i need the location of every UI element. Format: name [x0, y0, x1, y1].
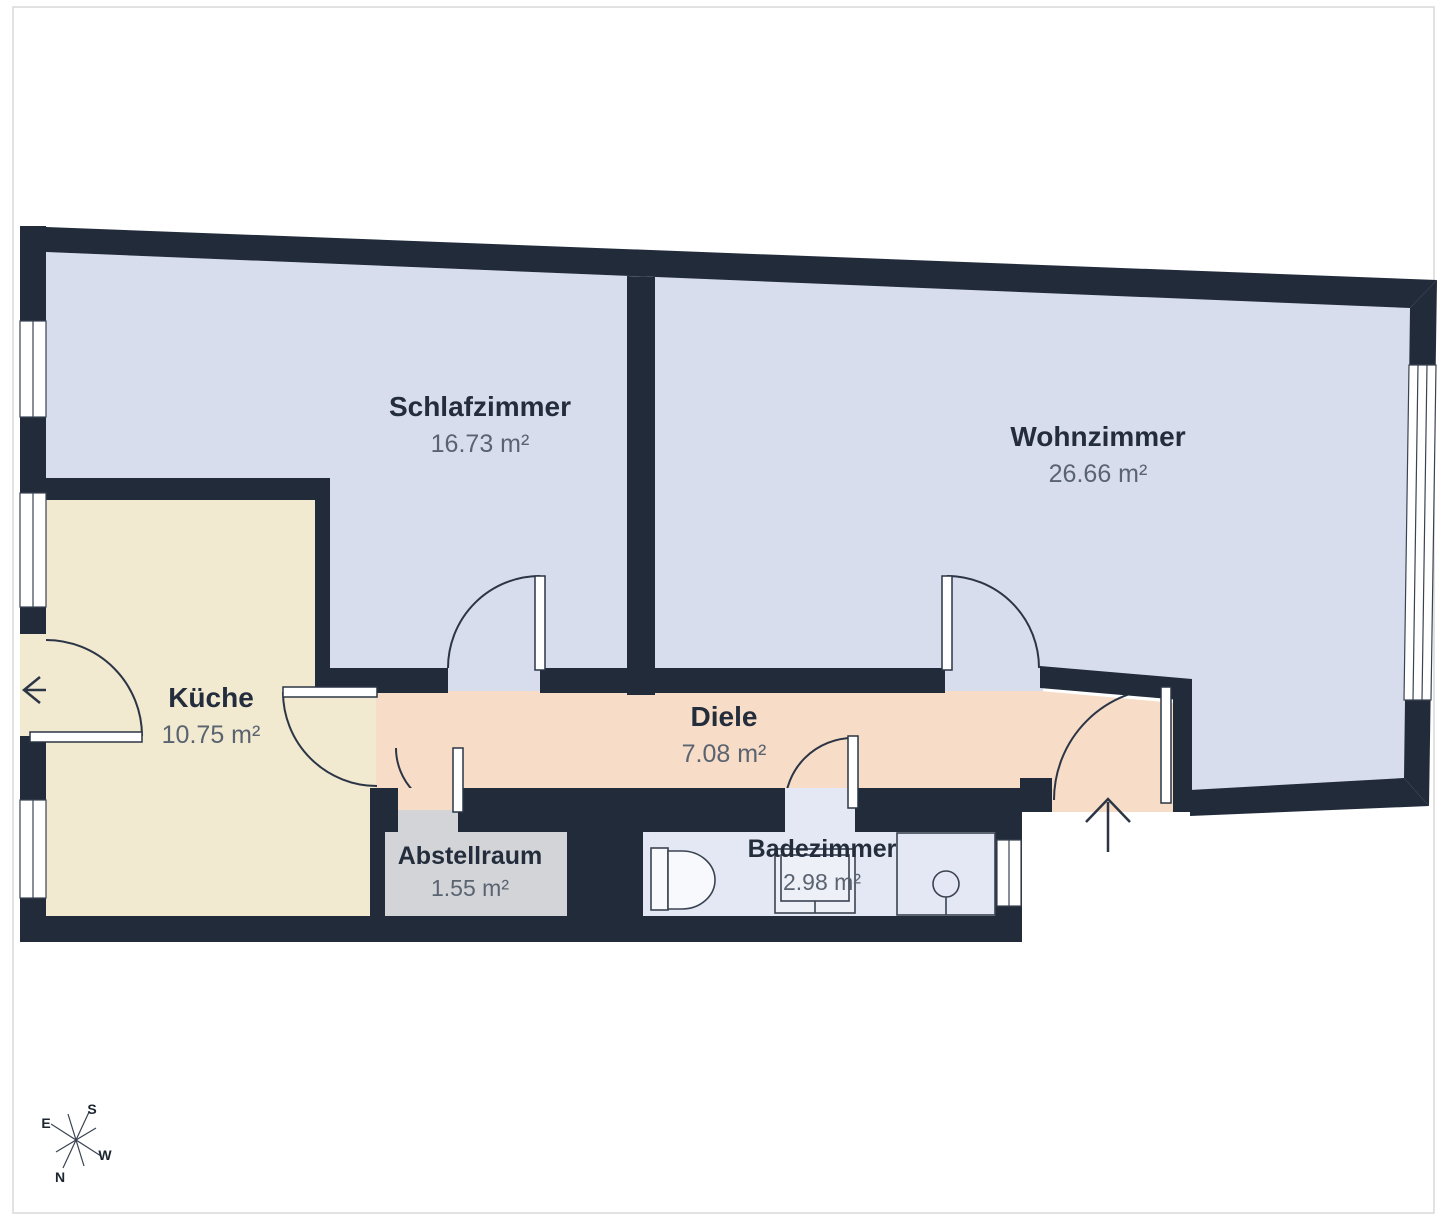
kitchen-exterior-door-opening [20, 634, 46, 736]
window-left-2 [20, 493, 46, 607]
kueche-area: 10.75 m² [162, 721, 261, 749]
wall-hall-bottom [370, 788, 1022, 832]
window-left-1 [20, 321, 46, 417]
wall-bedroom-living [627, 276, 655, 695]
window-right [1404, 365, 1436, 700]
kitchen-hall-door-leaf [283, 687, 377, 697]
wall-entry-nook-corner [1020, 778, 1052, 812]
schlafzimmer-area: 16.73 m² [431, 430, 530, 458]
abstellraum-door-opening-storage [398, 810, 458, 832]
kueche-label: Küche [168, 682, 254, 713]
badezimmer-area: 2.98 m² [783, 869, 861, 895]
window-left-3 [20, 800, 46, 898]
abstellraum-area: 1.55 m² [431, 875, 509, 901]
compass-north-label: N [55, 1169, 65, 1185]
badezimmer-label: Badezimmer [748, 835, 897, 863]
schlafzimmer-door-leaf [535, 576, 545, 670]
wohnzimmer-area: 26.66 m² [1049, 460, 1148, 488]
wohnzimmer-door-floor [943, 658, 1043, 692]
floorplan-page: Schlafzimmer 16.73 m² Wohnzimmer 26.66 m… [0, 0, 1440, 1218]
compass-east-label: E [41, 1115, 50, 1131]
wall-bottom [20, 916, 1022, 942]
compass-south-label: S [87, 1101, 96, 1117]
compass-rose-icon: S E W N [41, 1101, 112, 1185]
badezimmer-door-opening [785, 788, 855, 832]
diele-area: 7.08 m² [682, 740, 767, 768]
wall-entry-nook-right [1173, 679, 1192, 812]
wall-hall-top-b [540, 668, 945, 693]
abstellraum-label: Abstellraum [398, 842, 542, 870]
wall-storage-bath [567, 832, 643, 916]
wall-kitchen-storage [370, 832, 385, 916]
floorplan-drawing: Schlafzimmer 16.73 m² Wohnzimmer 26.66 m… [0, 0, 1440, 1218]
entrance-door-leaf [1161, 687, 1171, 803]
wall-kitchen-bedroom [315, 478, 330, 670]
diele-label: Diele [691, 701, 758, 732]
abstellraum-door-leaf [453, 748, 463, 812]
kitchen-exterior-door-leaf [30, 732, 142, 742]
schlafzimmer-label: Schlafzimmer [389, 391, 571, 422]
window-bath [997, 840, 1021, 906]
wohnzimmer-label: Wohnzimmer [1010, 421, 1185, 452]
compass-west-label: W [98, 1147, 112, 1163]
wall-kitchen-top [20, 478, 330, 500]
wohnzimmer-door-leaf [942, 576, 952, 670]
badezimmer-door-leaf [848, 736, 858, 808]
abstellraum-door-opening-hall [398, 788, 458, 810]
